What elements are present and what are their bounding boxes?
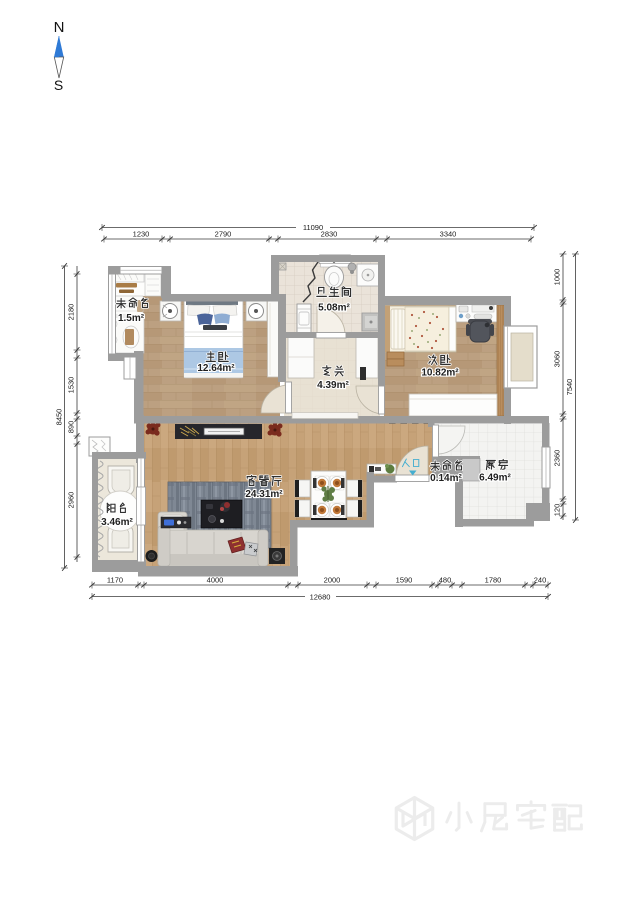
svg-text:S: S: [54, 77, 63, 93]
svg-text:1530: 1530: [67, 377, 76, 394]
svg-text:4.39m²: 4.39m²: [317, 380, 349, 391]
svg-text:N: N: [54, 19, 65, 36]
svg-text:2180: 2180: [67, 304, 76, 321]
svg-text:24.31m²: 24.31m²: [245, 489, 283, 500]
svg-text:2000: 2000: [324, 576, 341, 585]
svg-text:1.5m²: 1.5m²: [118, 313, 145, 324]
svg-text:3060: 3060: [553, 351, 562, 368]
svg-text:480: 480: [439, 576, 452, 585]
svg-text:0.14m²: 0.14m²: [430, 473, 462, 484]
svg-text:12680: 12680: [310, 593, 331, 602]
svg-text:1230: 1230: [133, 230, 150, 239]
svg-text:2960: 2960: [67, 492, 76, 509]
svg-text:4000: 4000: [207, 576, 224, 585]
svg-text:1590: 1590: [396, 576, 413, 585]
svg-text:1780: 1780: [485, 576, 502, 585]
svg-text:890: 890: [67, 421, 76, 434]
svg-text:6.49m²: 6.49m²: [479, 473, 511, 484]
svg-text:3.46m²: 3.46m²: [101, 517, 133, 528]
svg-text:10.82m²: 10.82m²: [421, 368, 459, 379]
svg-text:240: 240: [534, 576, 547, 585]
svg-text:5.08m²: 5.08m²: [318, 303, 350, 314]
svg-text:8450: 8450: [55, 409, 64, 426]
svg-text:1000: 1000: [553, 269, 562, 286]
svg-text:2790: 2790: [215, 230, 232, 239]
svg-text:2360: 2360: [553, 450, 562, 467]
svg-text:120: 120: [553, 504, 562, 517]
svg-text:12.64m²: 12.64m²: [197, 363, 235, 374]
svg-text:2830: 2830: [321, 230, 338, 239]
svg-text:1170: 1170: [107, 576, 123, 585]
svg-text:7540: 7540: [565, 379, 574, 396]
svg-text:3340: 3340: [440, 230, 457, 239]
